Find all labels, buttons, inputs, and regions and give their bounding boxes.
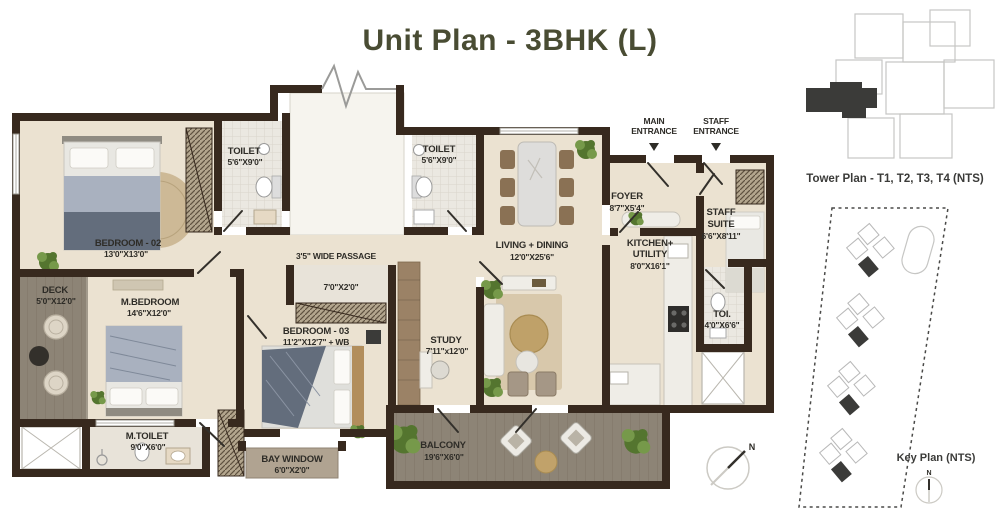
room-label-toilet-1: TOILET 5'6"X9'0" (228, 146, 263, 167)
svg-text:6'6"X8'11": 6'6"X8'11" (702, 231, 741, 241)
svg-text:8'7"X5'4": 8'7"X5'4" (610, 203, 645, 213)
passage-label: 3'5" WIDE PASSAGE (296, 251, 376, 261)
staff-entrance-arrow-icon (711, 143, 721, 151)
svg-text:5'0"X12'0": 5'0"X12'0" (36, 296, 76, 306)
key-plan: Key Plan (NTS) N (799, 208, 976, 507)
svg-text:KITCHEN+: KITCHEN+ (627, 238, 674, 249)
svg-text:TOILET: TOILET (423, 144, 456, 155)
svg-text:BEDROOM - 02: BEDROOM - 02 (95, 238, 161, 249)
svg-text:STAFF: STAFF (707, 207, 736, 218)
room-label-m-toilet: M.TOILET 9'0"X6'0" (126, 431, 169, 452)
svg-text:4'0"X6'6": 4'0"X6'6" (705, 320, 740, 330)
room-label-kitchen-utility: KITCHEN+ UTILITY 8'0"X16'1" (627, 238, 674, 271)
svg-text:7'11"x12'0": 7'11"x12'0" (426, 346, 469, 356)
svg-text:STUDY: STUDY (430, 335, 462, 346)
main-entrance-label: MAIN (644, 116, 665, 126)
svg-text:19'6"X6'0": 19'6"X6'0" (424, 452, 464, 462)
floor-plan-canvas: BEDROOM - 02 13'0"X13'0" TOILET 5'6"X9'0… (0, 0, 1000, 521)
svg-text:9'0"X6'0": 9'0"X6'0" (131, 442, 166, 452)
svg-text:14'6"X12'0": 14'6"X12'0" (127, 308, 171, 318)
key-plan-caption: Key Plan (NTS) (897, 452, 976, 464)
svg-text:13'0"X13'0": 13'0"X13'0" (104, 249, 148, 259)
key-plan-cluster (833, 292, 888, 348)
room-label-bedroom-03: BEDROOM - 03 11'2"X12'7" + WB (283, 326, 349, 347)
tower-plan-caption: Tower Plan - T1, T2, T3, T4 (NTS) (806, 173, 984, 185)
svg-text:6'0"X2'0": 6'0"X2'0" (275, 465, 310, 475)
bed-icon (62, 136, 162, 250)
svg-text:N: N (749, 442, 756, 452)
compass-icon: N (707, 442, 755, 489)
svg-text:ENTRANCE: ENTRANCE (693, 126, 739, 136)
room-label-toilet-2: TOILET 5'6"X9'0" (422, 144, 457, 165)
room-label-m-bedroom: M.BEDROOM 14'6"X12'0" (121, 297, 180, 318)
svg-text:N: N (926, 470, 931, 477)
svg-text:UTILITY: UTILITY (633, 249, 668, 260)
main-entrance-arrow-icon (649, 143, 659, 151)
svg-text:SUITE: SUITE (708, 219, 735, 230)
key-plan-cluster (824, 360, 879, 416)
key-plan-cluster (816, 427, 871, 483)
svg-text:5'6"X9'0": 5'6"X9'0" (228, 157, 263, 167)
svg-text:11'2"X12'7" + WB: 11'2"X12'7" + WB (283, 337, 349, 347)
svg-text:LIVING + DINING: LIVING + DINING (496, 240, 569, 251)
staff-entrance-label: STAFF (703, 116, 729, 126)
entrance-labels: MAIN ENTRANCE STAFF ENTRANCE (631, 116, 739, 151)
svg-text:BEDROOM - 03: BEDROOM - 03 (283, 326, 349, 337)
dining-table-icon (500, 142, 574, 226)
svg-text:TOI.: TOI. (713, 309, 731, 320)
tower-plan-highlighted-unit (806, 82, 877, 118)
key-plan-cluster (843, 222, 898, 278)
svg-text:TOILET: TOILET (228, 146, 261, 157)
svg-text:12'0"X25'6": 12'0"X25'6" (510, 252, 554, 262)
svg-text:BALCONY: BALCONY (420, 440, 466, 451)
svg-text:M.BEDROOM: M.BEDROOM (121, 297, 180, 308)
tower-plan: Tower Plan - T1, T2, T3, T4 (NTS) (806, 10, 994, 185)
key-plan-compass-icon: N (916, 470, 942, 503)
svg-text:FOYER: FOYER (611, 191, 643, 202)
svg-text:BAY WINDOW: BAY WINDOW (261, 454, 323, 465)
svg-text:M.TOILET: M.TOILET (126, 431, 169, 442)
svg-text:5'6"X9'0": 5'6"X9'0" (422, 155, 457, 165)
niche-dim-label: 7'0"X2'0" (324, 282, 359, 292)
svg-text:ENTRANCE: ENTRANCE (631, 126, 677, 136)
svg-text:DECK: DECK (42, 285, 68, 296)
floor-plan-page: Unit Plan - 3BHK (L) (0, 0, 1000, 521)
svg-text:8'0"X16'1": 8'0"X16'1" (630, 261, 670, 271)
